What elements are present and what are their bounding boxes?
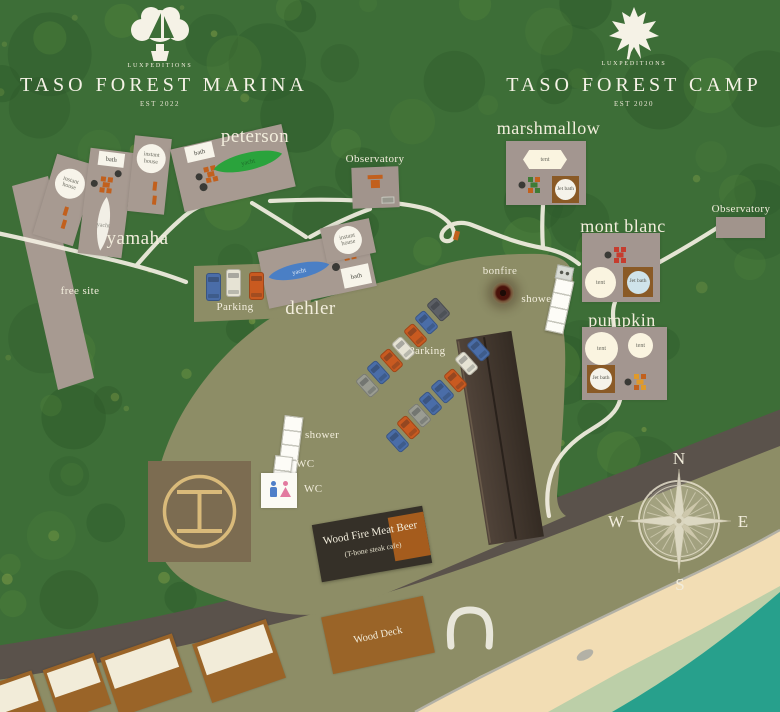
marina-title: TASO FOREST MARINA — [20, 74, 300, 97]
picnic-set-icon — [518, 176, 544, 194]
camp-brand: LUXPEDITIONS — [574, 61, 694, 67]
bonfire-label: bonfire — [470, 266, 530, 278]
marina-est: EST 2022 — [20, 100, 300, 108]
bath-label: bath — [341, 263, 373, 288]
tent-label: tent — [628, 333, 653, 358]
observatory-west — [351, 166, 399, 209]
site-label-marshmallow: marshmallow — [496, 119, 601, 138]
tent-label: tent — [523, 150, 567, 169]
tent-label: tent — [585, 267, 616, 298]
car-icon — [249, 272, 264, 300]
bench-strip-icon — [63, 206, 69, 216]
site-label-yamaha: yamaha — [90, 229, 185, 249]
jet-bath-label: Jet bath — [627, 271, 650, 294]
mont-blanc-site: tent Jet bath — [582, 233, 660, 302]
wc-label: WC — [304, 484, 334, 496]
observatory-east — [716, 217, 765, 238]
marina-logo sail-tree-logo — [118, 4, 202, 62]
panel-icon — [381, 196, 394, 203]
shower-south-label: shower — [305, 430, 355, 442]
instant-house-2: instant house — [127, 135, 172, 214]
telescope-icon — [368, 175, 383, 180]
picnic-set-icon — [624, 373, 650, 391]
car-icon — [206, 273, 221, 301]
marshmallow-site: tent Jet bath — [506, 141, 586, 205]
wc-house — [261, 473, 297, 508]
observatory-west-label: Observatory — [340, 154, 410, 166]
site-label-dehler: dehler — [268, 299, 353, 319]
bench-strip-icon — [152, 181, 157, 190]
camp-est: EST 2020 — [504, 100, 764, 108]
resort-map: N E S W LUXPEDITIONS TASO FOREST MARINA … — [0, 0, 780, 712]
compass-west: W — [608, 512, 625, 531]
compass-north: N — [673, 449, 685, 468]
jet-bath-label: Jet bath — [555, 179, 576, 200]
bench-strip-icon — [152, 195, 157, 204]
car-icon — [226, 269, 241, 297]
bath-label: bath — [98, 151, 126, 168]
helipad — [148, 461, 251, 562]
table-icon — [331, 262, 340, 271]
picnic-set-icon — [604, 246, 630, 264]
instant-house-label: instant house — [51, 165, 88, 202]
compass-east: E — [738, 512, 748, 531]
marina-brand: LUXPEDITIONS — [95, 63, 225, 69]
observatory-east-label: Observatory — [706, 204, 776, 216]
free-site-label: free site — [50, 286, 110, 298]
female-icon — [280, 481, 291, 499]
yacht-icon: yacht — [264, 251, 334, 290]
telescope-icon — [371, 180, 380, 188]
picnic-set-icon — [89, 174, 117, 195]
jet-bath-label: Jet bath — [590, 368, 612, 390]
camp-title: TASO FOREST CAMP — [504, 74, 764, 97]
compass-south: S — [675, 575, 684, 594]
camp-logo maple-leaf-logo — [603, 5, 665, 61]
wc-label: WC — [296, 459, 326, 471]
pumpkin-site: tent tent Jet bath — [582, 327, 667, 400]
tent-label: tent — [585, 332, 618, 365]
male-icon — [268, 481, 279, 499]
site-label-peterson: peterson — [205, 127, 305, 147]
instant-house-label: instant house — [135, 143, 167, 175]
bench-strip-icon — [61, 219, 67, 229]
bonfire-icon — [492, 282, 514, 304]
parking-west-label: Parking — [200, 302, 270, 314]
instant-house-label: instant house — [331, 223, 364, 256]
